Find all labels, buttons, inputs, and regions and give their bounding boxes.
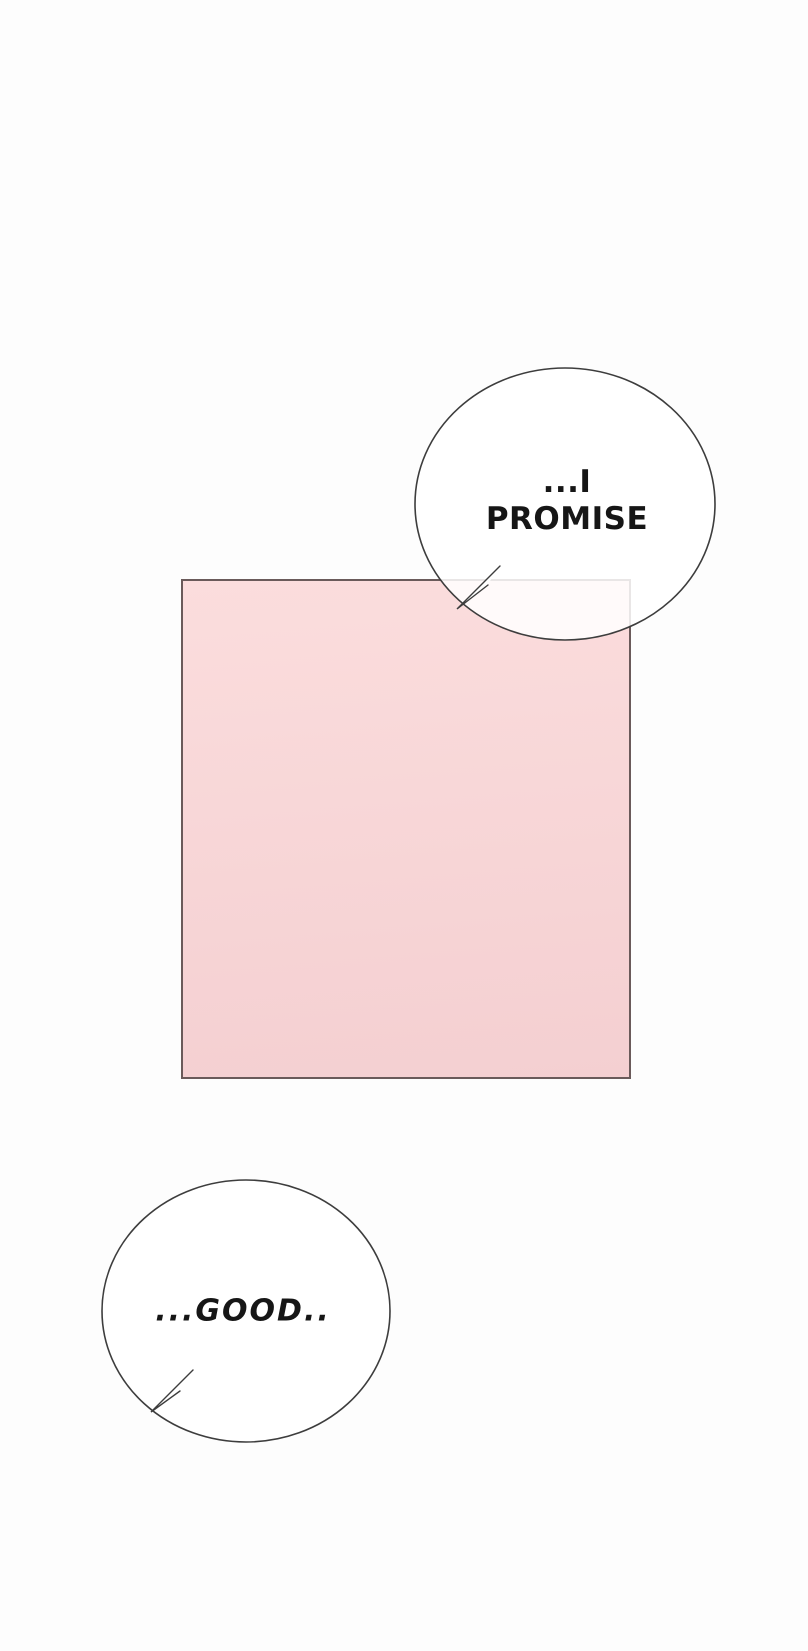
speech-bubbles-layer	[0, 0, 808, 1651]
speech-text-promise: ...I PROMISE	[486, 464, 648, 538]
comic-page: ...I PROMISE ...GOOD..	[0, 0, 808, 1651]
speech-text-promise-line1: ...I	[486, 464, 648, 501]
speech-text-good: ...GOOD..	[155, 1294, 331, 1329]
speech-text-good-line: ...GOOD..	[155, 1294, 331, 1329]
speech-text-promise-line2: PROMISE	[486, 501, 648, 538]
